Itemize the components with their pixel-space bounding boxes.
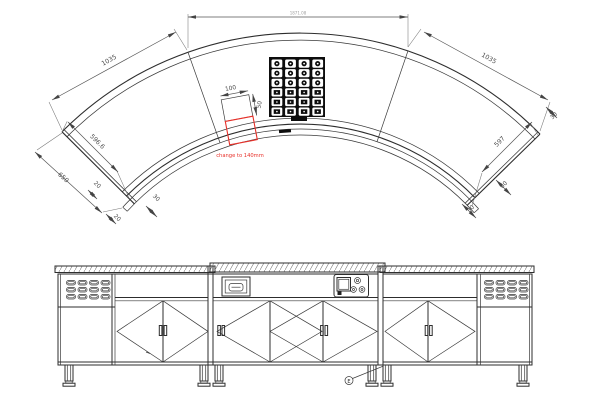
legs [63, 365, 529, 386]
reference-mark: E [347, 379, 350, 385]
door-handle [164, 326, 167, 336]
door-handle [321, 326, 324, 336]
plan-view: change to 140mm 1871.08 1035 1035 596.6 [35, 11, 559, 225]
door-pair-left [115, 298, 208, 363]
vent-cabinet-left [58, 274, 115, 365]
drawer-vent-center [222, 277, 250, 296]
revision-note: change to 140mm [216, 153, 264, 159]
module-junction-right [378, 266, 383, 365]
dim-overall-top: 1871.08 [290, 11, 307, 16]
cad-drawing: change to 140mm 1871.08 1035 1035 596.6 [0, 0, 600, 400]
dim-end-left-outer: 650 [56, 171, 70, 184]
leveling-foot [213, 365, 225, 386]
front-elevation-view: E [55, 263, 534, 386]
knob [351, 287, 357, 293]
door-handle [325, 326, 328, 336]
door-quad-center [213, 298, 378, 363]
dim-segment-right: 1035 [480, 52, 497, 66]
revised-cutout-outline [225, 116, 257, 145]
knob [355, 278, 361, 284]
module-junction-left [208, 266, 213, 365]
control-panel [334, 275, 369, 298]
vent-grille-left [67, 281, 111, 300]
leveling-foot [381, 365, 393, 386]
dim-left-small-1: 20 [92, 181, 102, 191]
countertop-left [55, 266, 215, 273]
connector-patch-panel [269, 57, 325, 133]
leveling-foot [517, 365, 529, 386]
door-handle [430, 326, 433, 336]
leveling-foot [366, 365, 378, 386]
dim-cutout-width: 100 [225, 85, 237, 93]
leveling-foot [63, 365, 75, 386]
door-handle [159, 326, 162, 336]
reference-leader: E [345, 366, 384, 385]
dim-right-30-top: 30 [550, 111, 560, 121]
patch-panel-tab [291, 117, 307, 121]
door-handle [222, 326, 225, 336]
leveling-foot [198, 365, 210, 386]
vent-cabinet-right [477, 274, 532, 365]
dim-left-small-3: 30 [151, 194, 161, 204]
dim-end-right-depth: 597 [493, 135, 506, 148]
countertop-right [380, 266, 534, 273]
door-pair-right [383, 298, 477, 363]
dim-cutout-depth: 50 [257, 100, 264, 109]
vent-grille-right [485, 281, 529, 300]
dim-right-60: 60 [500, 180, 510, 190]
door-handle [425, 326, 428, 336]
knob [359, 287, 365, 293]
power-button [338, 292, 342, 296]
dim-end-left-depth: 596.6 [88, 133, 106, 151]
countertop-center [210, 263, 385, 272]
